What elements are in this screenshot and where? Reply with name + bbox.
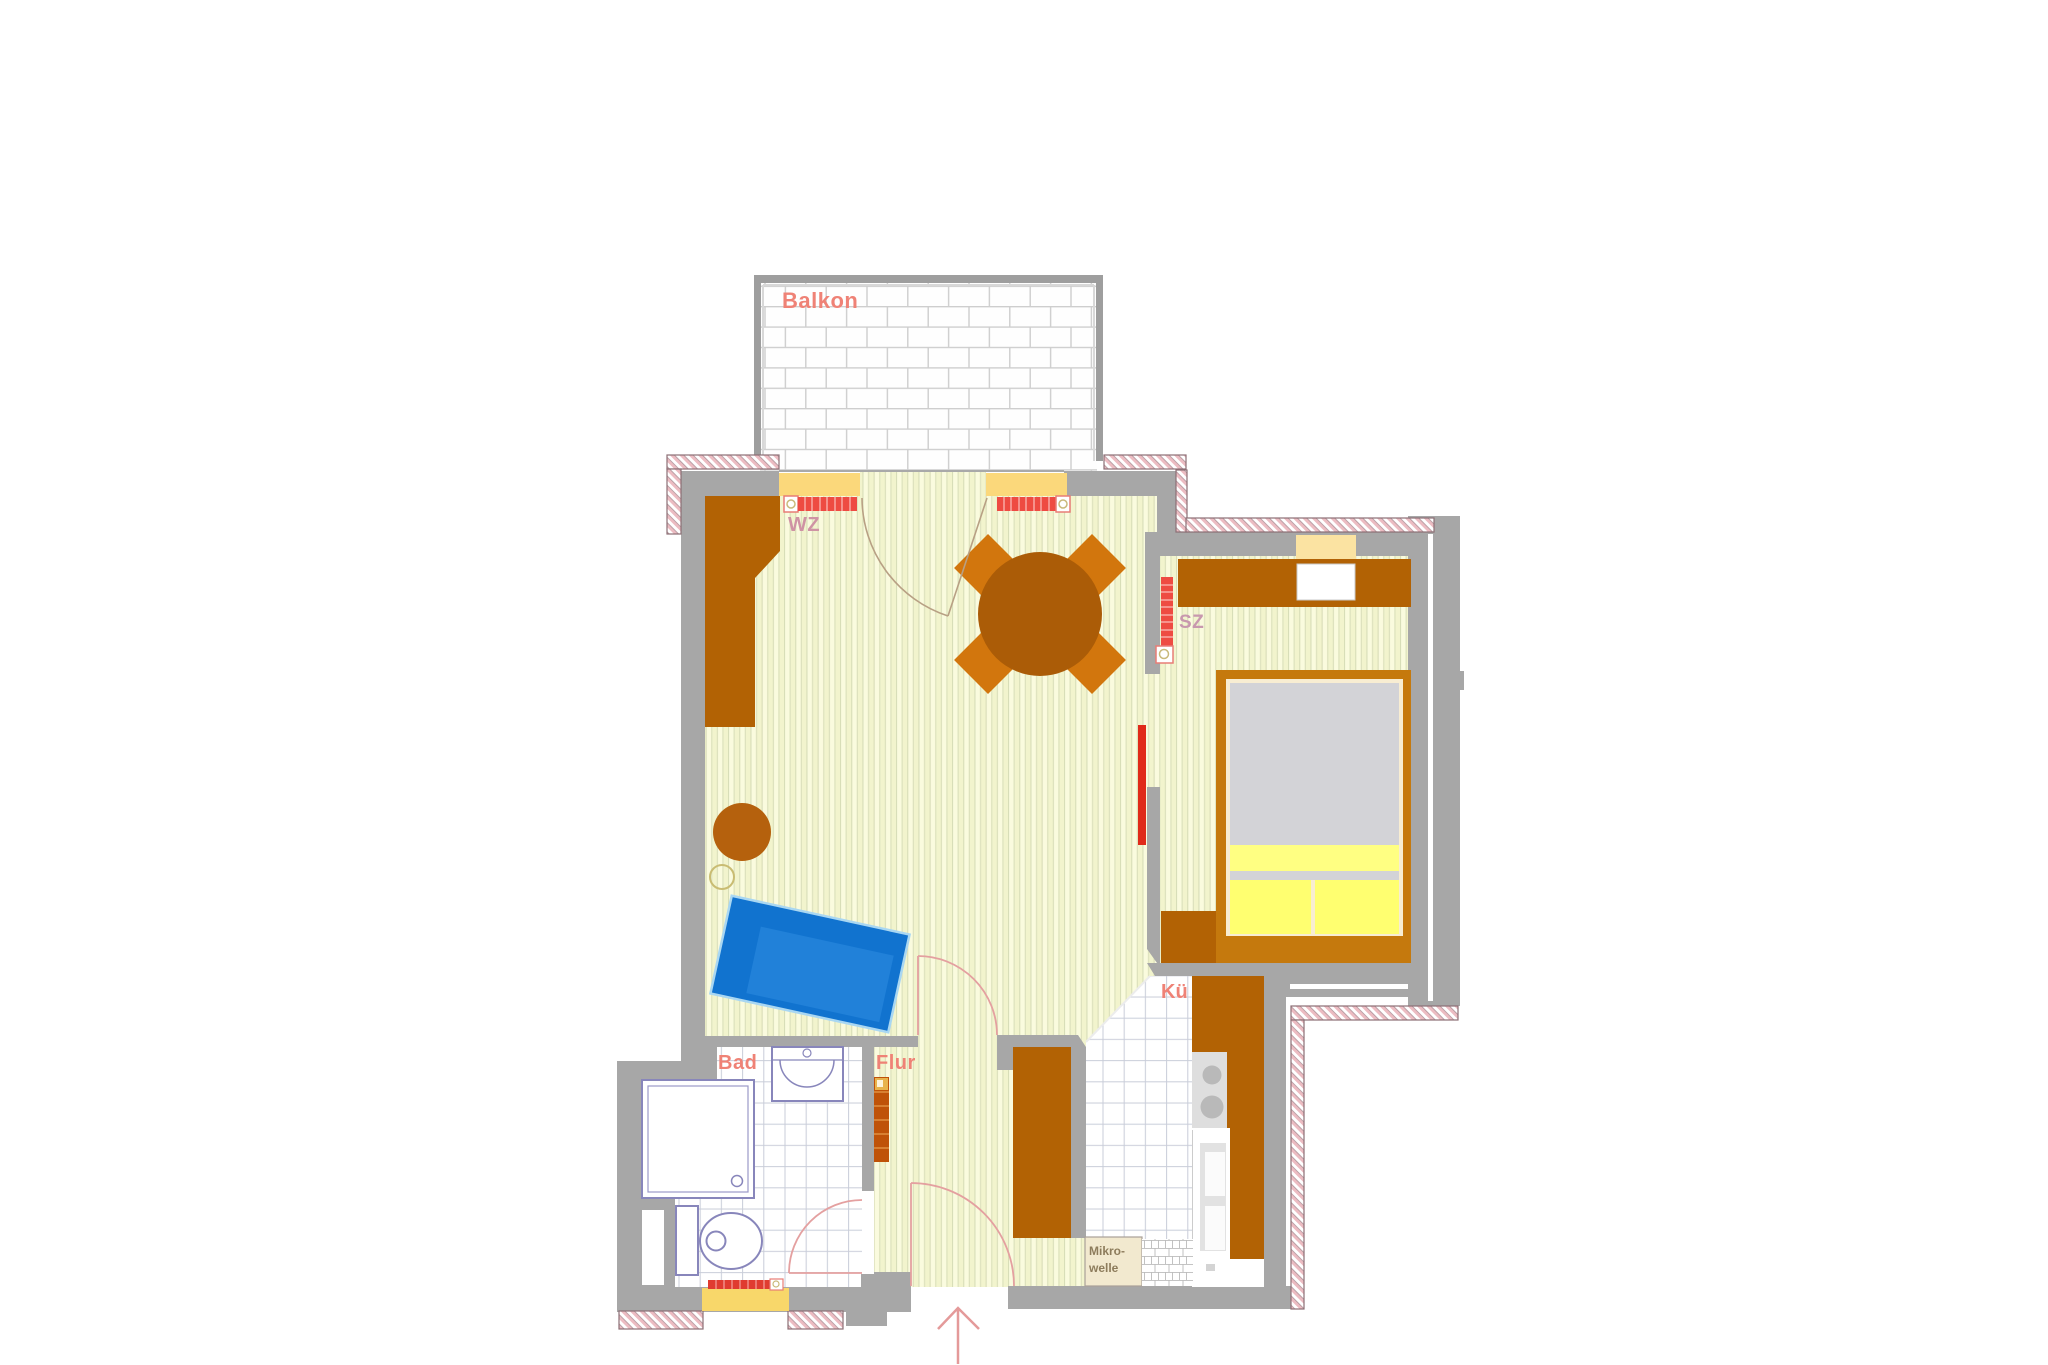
svg-text:WZ: WZ <box>788 514 820 536</box>
svg-text:Kü: Kü <box>1161 981 1188 1003</box>
svg-text:Bad: Bad <box>718 1052 757 1074</box>
svg-text:welle: welle <box>1088 1261 1119 1275</box>
svg-text:Balkon: Balkon <box>782 288 858 313</box>
svg-text:Flur: Flur <box>876 1052 916 1074</box>
svg-text:SZ: SZ <box>1179 612 1204 633</box>
svg-text:Mikro-: Mikro- <box>1089 1244 1125 1258</box>
